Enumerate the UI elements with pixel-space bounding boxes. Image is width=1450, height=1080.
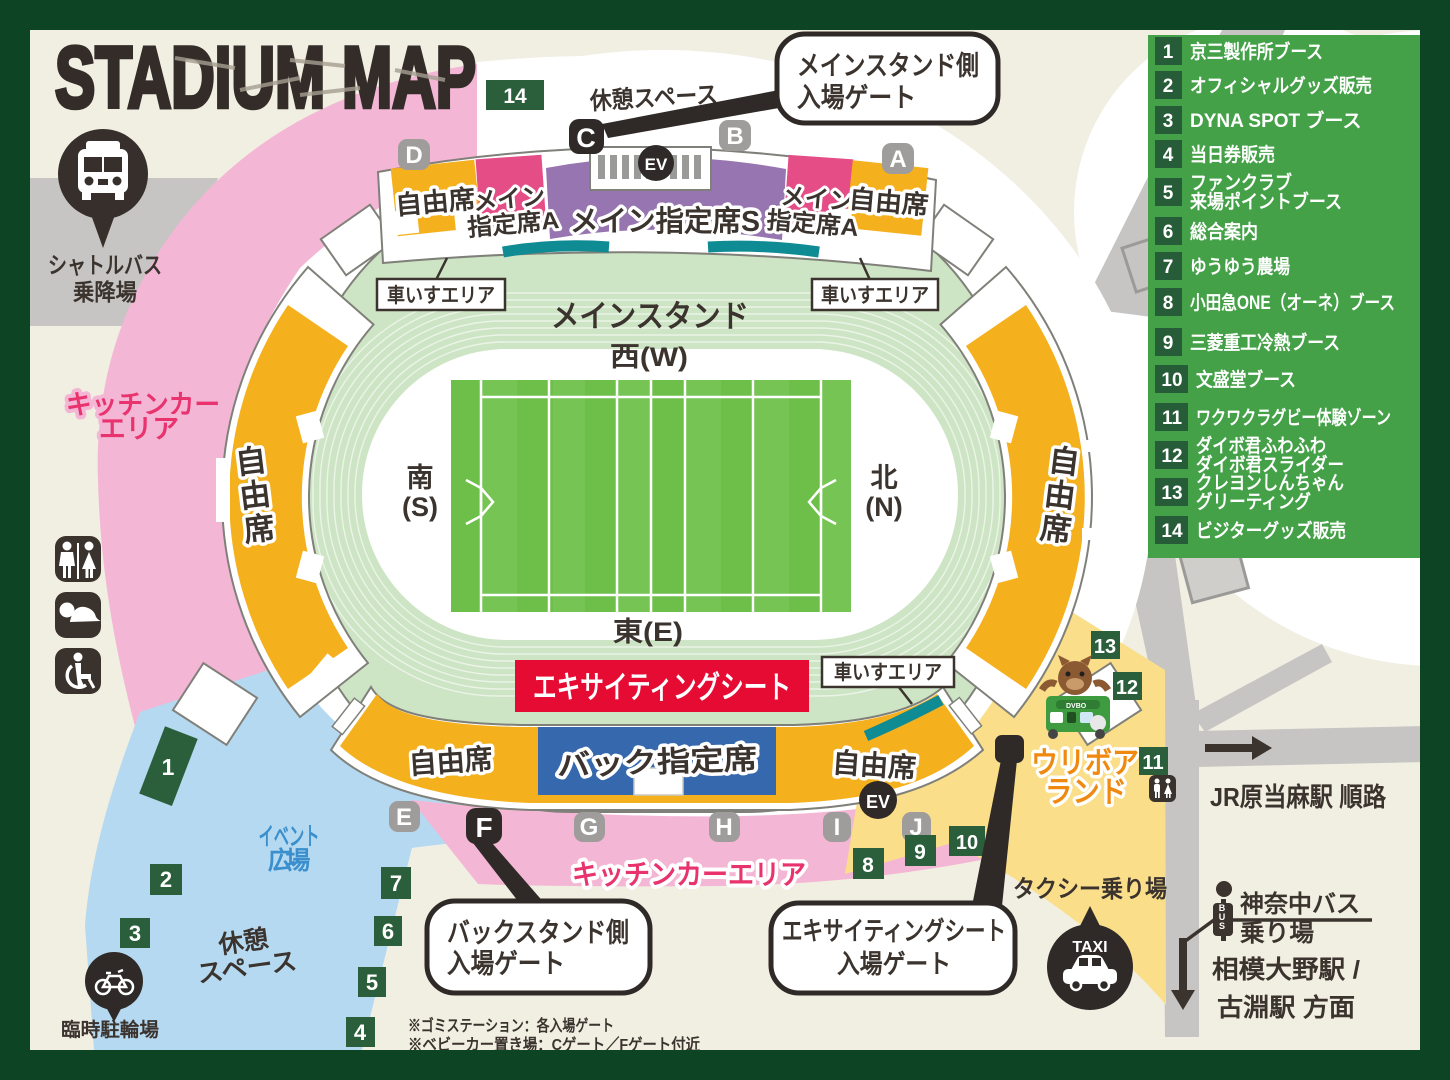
svg-text:入場ゲート: 入場ゲート xyxy=(447,949,565,979)
svg-text:入場ゲート: 入場ゲート xyxy=(797,83,916,113)
svg-text:1: 1 xyxy=(1163,42,1174,63)
svg-text:乗降場: 乗降場 xyxy=(73,279,137,305)
svg-text:西(W): 西(W) xyxy=(610,342,688,372)
svg-text:三菱重工冷熱ブース: 三菱重工冷熱ブース xyxy=(1190,331,1340,354)
svg-text:メイン指定席S: メイン指定席S xyxy=(570,204,760,238)
svg-text:ワクワクラグビー体験ゾーン: ワクワクラグビー体験ゾーン xyxy=(1196,406,1391,429)
svg-text:3: 3 xyxy=(1163,111,1174,132)
svg-text:STADIUM MAP: STADIUM MAP xyxy=(55,30,476,126)
svg-text:京三製作所ブース: 京三製作所ブース xyxy=(1190,40,1323,63)
svg-text:ファンクラブ: ファンクラブ xyxy=(1190,171,1292,194)
svg-text:南(S): 南(S) xyxy=(402,463,438,522)
svg-text:13: 13 xyxy=(1094,636,1116,658)
svg-text:10: 10 xyxy=(1161,370,1182,391)
svg-text:オフィシャルグッズ販売: オフィシャルグッズ販売 xyxy=(1190,74,1372,97)
svg-text:来場ポイントブース: 来場ポイントブース xyxy=(1190,190,1342,213)
svg-text:BUS: BUS xyxy=(1219,903,1226,931)
svg-text:9: 9 xyxy=(1163,333,1174,354)
svg-text:4: 4 xyxy=(354,1020,367,1045)
svg-text:メインスタンド: メインスタンド xyxy=(551,299,749,334)
svg-text:入場ゲート: 入場ゲート xyxy=(837,949,951,979)
svg-text:9: 9 xyxy=(914,841,926,864)
svg-text:古淵駅 方面: 古淵駅 方面 xyxy=(1217,993,1355,1022)
svg-text:D: D xyxy=(405,142,422,169)
svg-text:6: 6 xyxy=(382,919,394,944)
svg-text:車いすエリア: 車いすエリア xyxy=(821,283,929,307)
svg-text:自由席: 自由席 xyxy=(408,742,494,780)
svg-text:5: 5 xyxy=(366,970,378,995)
svg-text:神奈中バス: 神奈中バス xyxy=(1240,891,1360,918)
svg-text:エリア: エリア xyxy=(99,414,179,444)
svg-text:ビジターグッズ販売: ビジターグッズ販売 xyxy=(1196,519,1346,542)
svg-text:B: B xyxy=(726,123,743,150)
svg-text:14: 14 xyxy=(503,85,527,108)
svg-text:10: 10 xyxy=(956,832,978,854)
svg-text:6: 6 xyxy=(1163,222,1174,243)
svg-text:DYNA SPOT ブース: DYNA SPOT ブース xyxy=(1190,109,1361,132)
svg-text:車いすエリア: 車いすエリア xyxy=(834,660,942,684)
svg-text:ゆうゆう農場: ゆうゆう農場 xyxy=(1190,256,1290,278)
svg-text:2: 2 xyxy=(160,867,172,892)
svg-text:TAXI: TAXI xyxy=(1072,939,1107,956)
svg-text:メインスタンド側: メインスタンド側 xyxy=(797,51,979,81)
svg-text:A: A xyxy=(889,146,906,173)
svg-text:EV: EV xyxy=(645,155,668,174)
svg-text:グリーティング: グリーティング xyxy=(1196,490,1311,513)
svg-text:シャトルバス: シャトルバス xyxy=(48,252,162,278)
svg-text:7: 7 xyxy=(390,871,402,896)
svg-text:ダイボ君ふわふわ: ダイボ君ふわふわ xyxy=(1196,434,1326,457)
svg-text:12: 12 xyxy=(1161,446,1182,467)
svg-text:エキサイティングシート: エキサイティングシート xyxy=(533,670,791,705)
svg-text:8: 8 xyxy=(862,854,874,877)
svg-text:12: 12 xyxy=(1116,677,1138,699)
svg-text:F: F xyxy=(475,812,492,843)
svg-text:13: 13 xyxy=(1161,483,1182,504)
svg-text:東(E): 東(E) xyxy=(613,617,683,647)
svg-text:文盛堂ブース: 文盛堂ブース xyxy=(1196,368,1296,391)
svg-text:小田急ONE（オーネ）ブース: 小田急ONE（オーネ）ブース xyxy=(1190,291,1395,314)
svg-text:バックスタンド側: バックスタンド側 xyxy=(447,918,629,948)
svg-text:7: 7 xyxy=(1163,257,1174,278)
svg-text:4: 4 xyxy=(1163,145,1174,166)
svg-text:北(N): 北(N) xyxy=(865,463,902,522)
svg-text:自由席: 自由席 xyxy=(831,746,917,784)
svg-text:11: 11 xyxy=(1142,752,1163,774)
svg-text:※ゴミステーション：各入場ゲート: ※ゴミステーション：各入場ゲート xyxy=(408,1016,614,1035)
svg-text:5: 5 xyxy=(1163,183,1174,204)
svg-text:8: 8 xyxy=(1163,293,1174,314)
svg-text:1: 1 xyxy=(162,754,175,780)
svg-text:C: C xyxy=(576,123,596,153)
svg-text:エキサイティングシート: エキサイティングシート xyxy=(782,916,1006,946)
svg-text:DVBO: DVBO xyxy=(1066,703,1087,710)
svg-text:相模大野駅 /: 相模大野駅 / xyxy=(1212,955,1360,984)
svg-text:2: 2 xyxy=(1163,76,1174,97)
svg-text:乗り場: 乗り場 xyxy=(1240,920,1314,947)
svg-text:ランド: ランド xyxy=(1045,776,1127,809)
svg-text:JR原当麻駅 順路: JR原当麻駅 順路 xyxy=(1210,782,1387,812)
svg-text:車いすエリア: 車いすエリア xyxy=(387,283,495,307)
svg-text:11: 11 xyxy=(1162,408,1183,429)
svg-text:H: H xyxy=(715,814,732,841)
svg-text:3: 3 xyxy=(129,921,141,946)
svg-text:14: 14 xyxy=(1161,521,1183,542)
svg-text:I: I xyxy=(834,814,841,841)
svg-text:タクシー乗り場: タクシー乗り場 xyxy=(1013,876,1167,903)
svg-text:キッチンカーエリア: キッチンカーエリア xyxy=(572,859,806,890)
svg-text:E: E xyxy=(396,804,412,831)
svg-text:G: G xyxy=(580,814,599,841)
svg-text:EV: EV xyxy=(866,792,890,812)
svg-text:クレヨンしんちゃん: クレヨンしんちゃん xyxy=(1196,472,1344,494)
svg-text:総合案内: 総合案内 xyxy=(1190,220,1258,243)
svg-text:当日券販売: 当日券販売 xyxy=(1190,143,1275,166)
svg-text:臨時駐輪場: 臨時駐輪場 xyxy=(61,1018,159,1041)
